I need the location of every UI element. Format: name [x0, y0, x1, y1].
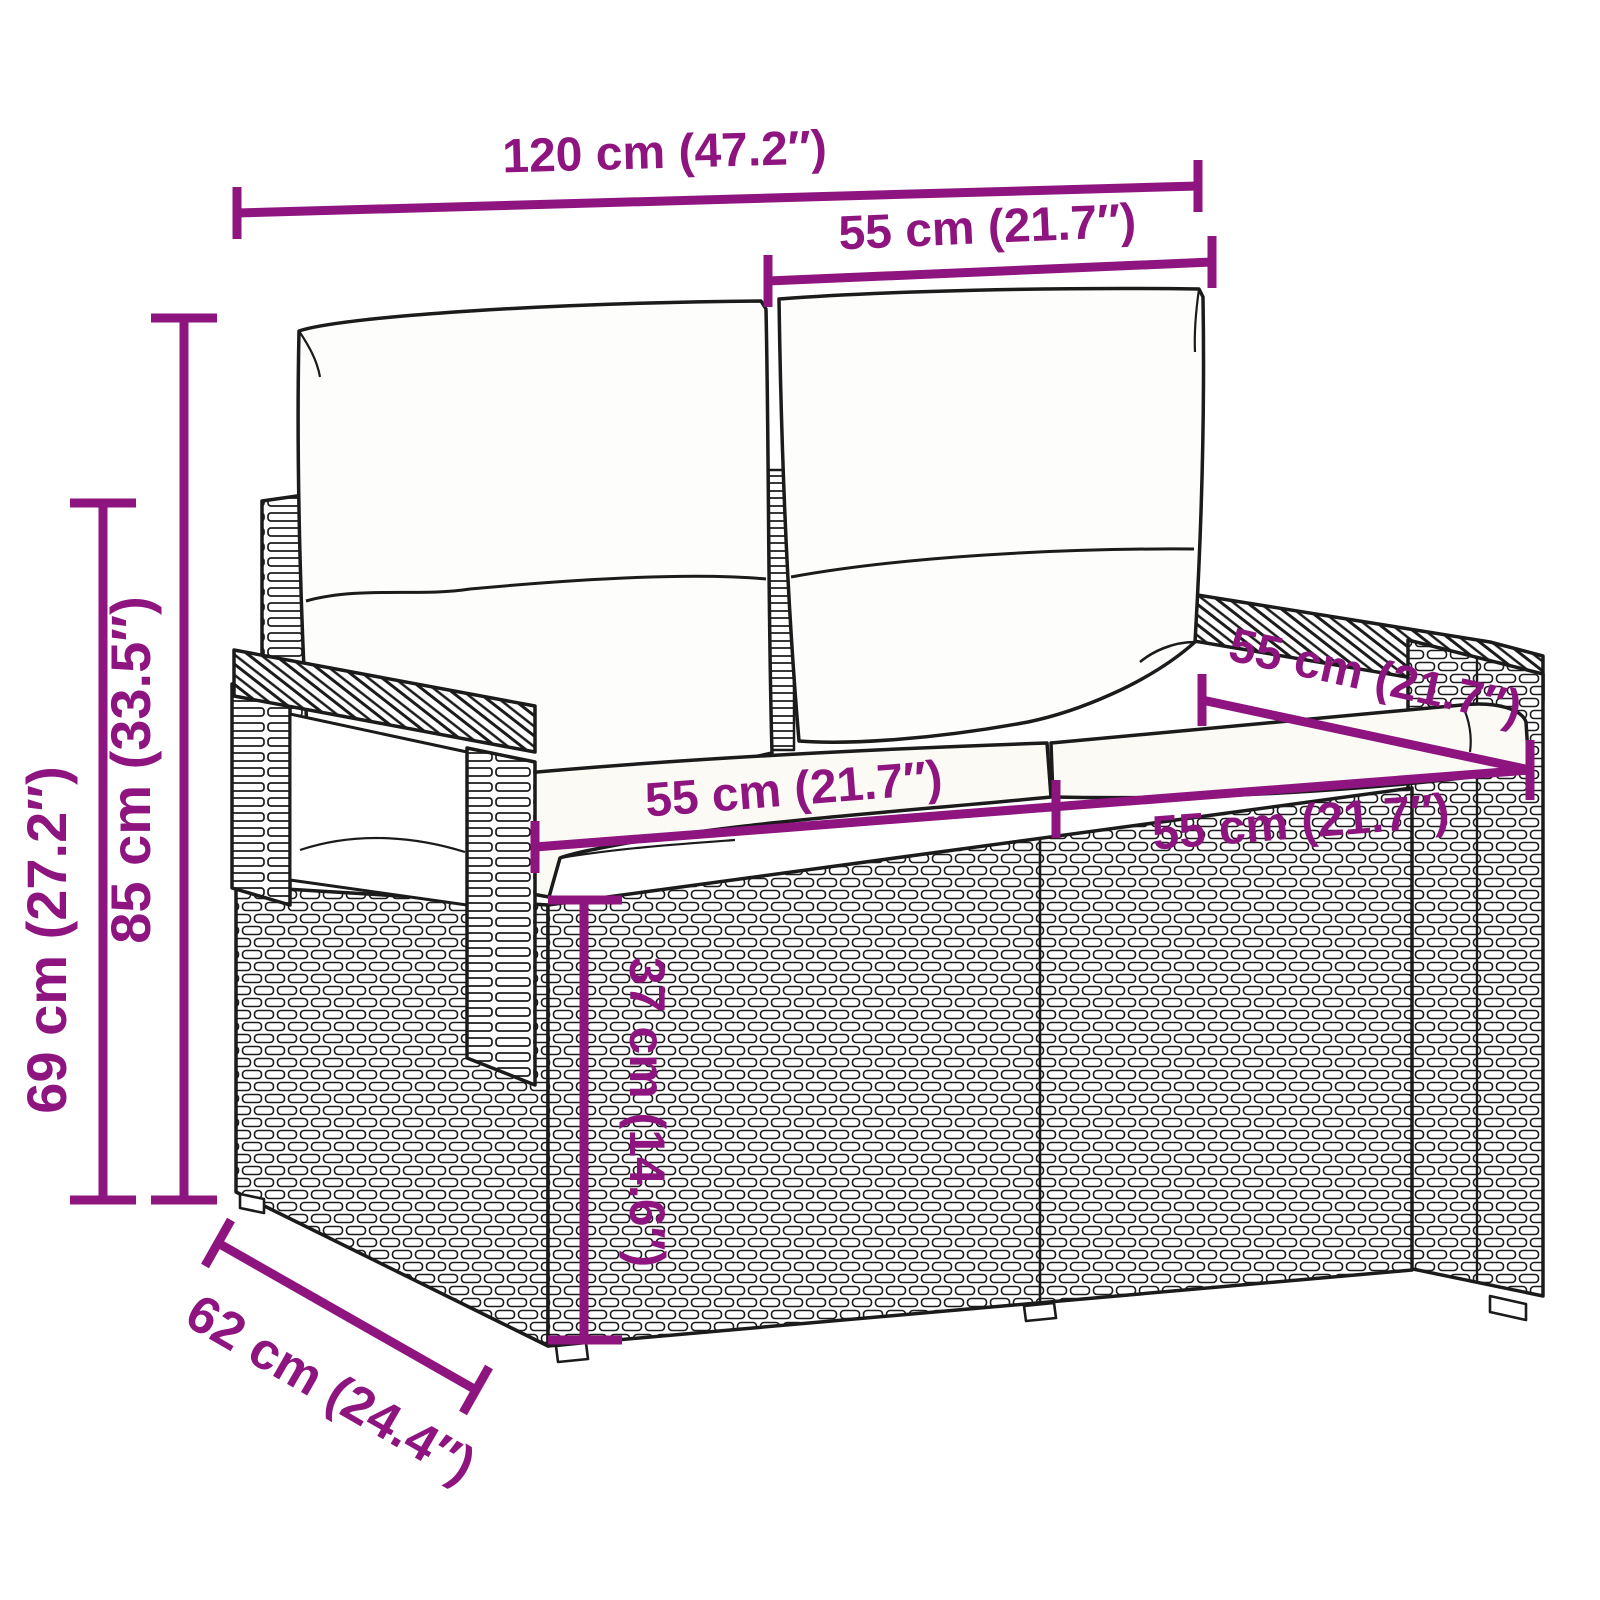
- bench-foot: [556, 1343, 588, 1362]
- bench-foot: [1024, 1303, 1056, 1321]
- bench-foot: [1490, 1296, 1526, 1320]
- dim-label-overall-height: 85 cm (33.5″): [99, 596, 162, 943]
- dim-label-overall-depth: 62 cm (24.4″): [176, 1284, 484, 1496]
- body-front-panel: [548, 788, 1412, 1346]
- dim-tick: [205, 1220, 231, 1266]
- dim-label-back-cushion-width: 55 cm (21.7″): [837, 195, 1137, 261]
- dim-label-seat-height: 37 cm (14.6″): [619, 957, 675, 1267]
- dim-label-overall-width: 120 cm (47.2″): [502, 121, 828, 183]
- back-cushion-right: [779, 288, 1204, 742]
- product-dimension-diagram: 120 cm (47.2″) 55 cm (21.7″) 85 cm (33.5…: [0, 0, 1600, 1600]
- dim-tick: [463, 1367, 489, 1413]
- dim-label-armrest-height: 69 cm (27.2″): [15, 766, 78, 1113]
- dimension-diagram-svg: 120 cm (47.2″) 55 cm (21.7″) 85 cm (33.5…: [0, 0, 1600, 1600]
- armrest-front-post: [467, 748, 535, 1085]
- dim-overall-height: 85 cm (33.5″): [99, 318, 217, 1200]
- armrest-left-column: [232, 684, 290, 905]
